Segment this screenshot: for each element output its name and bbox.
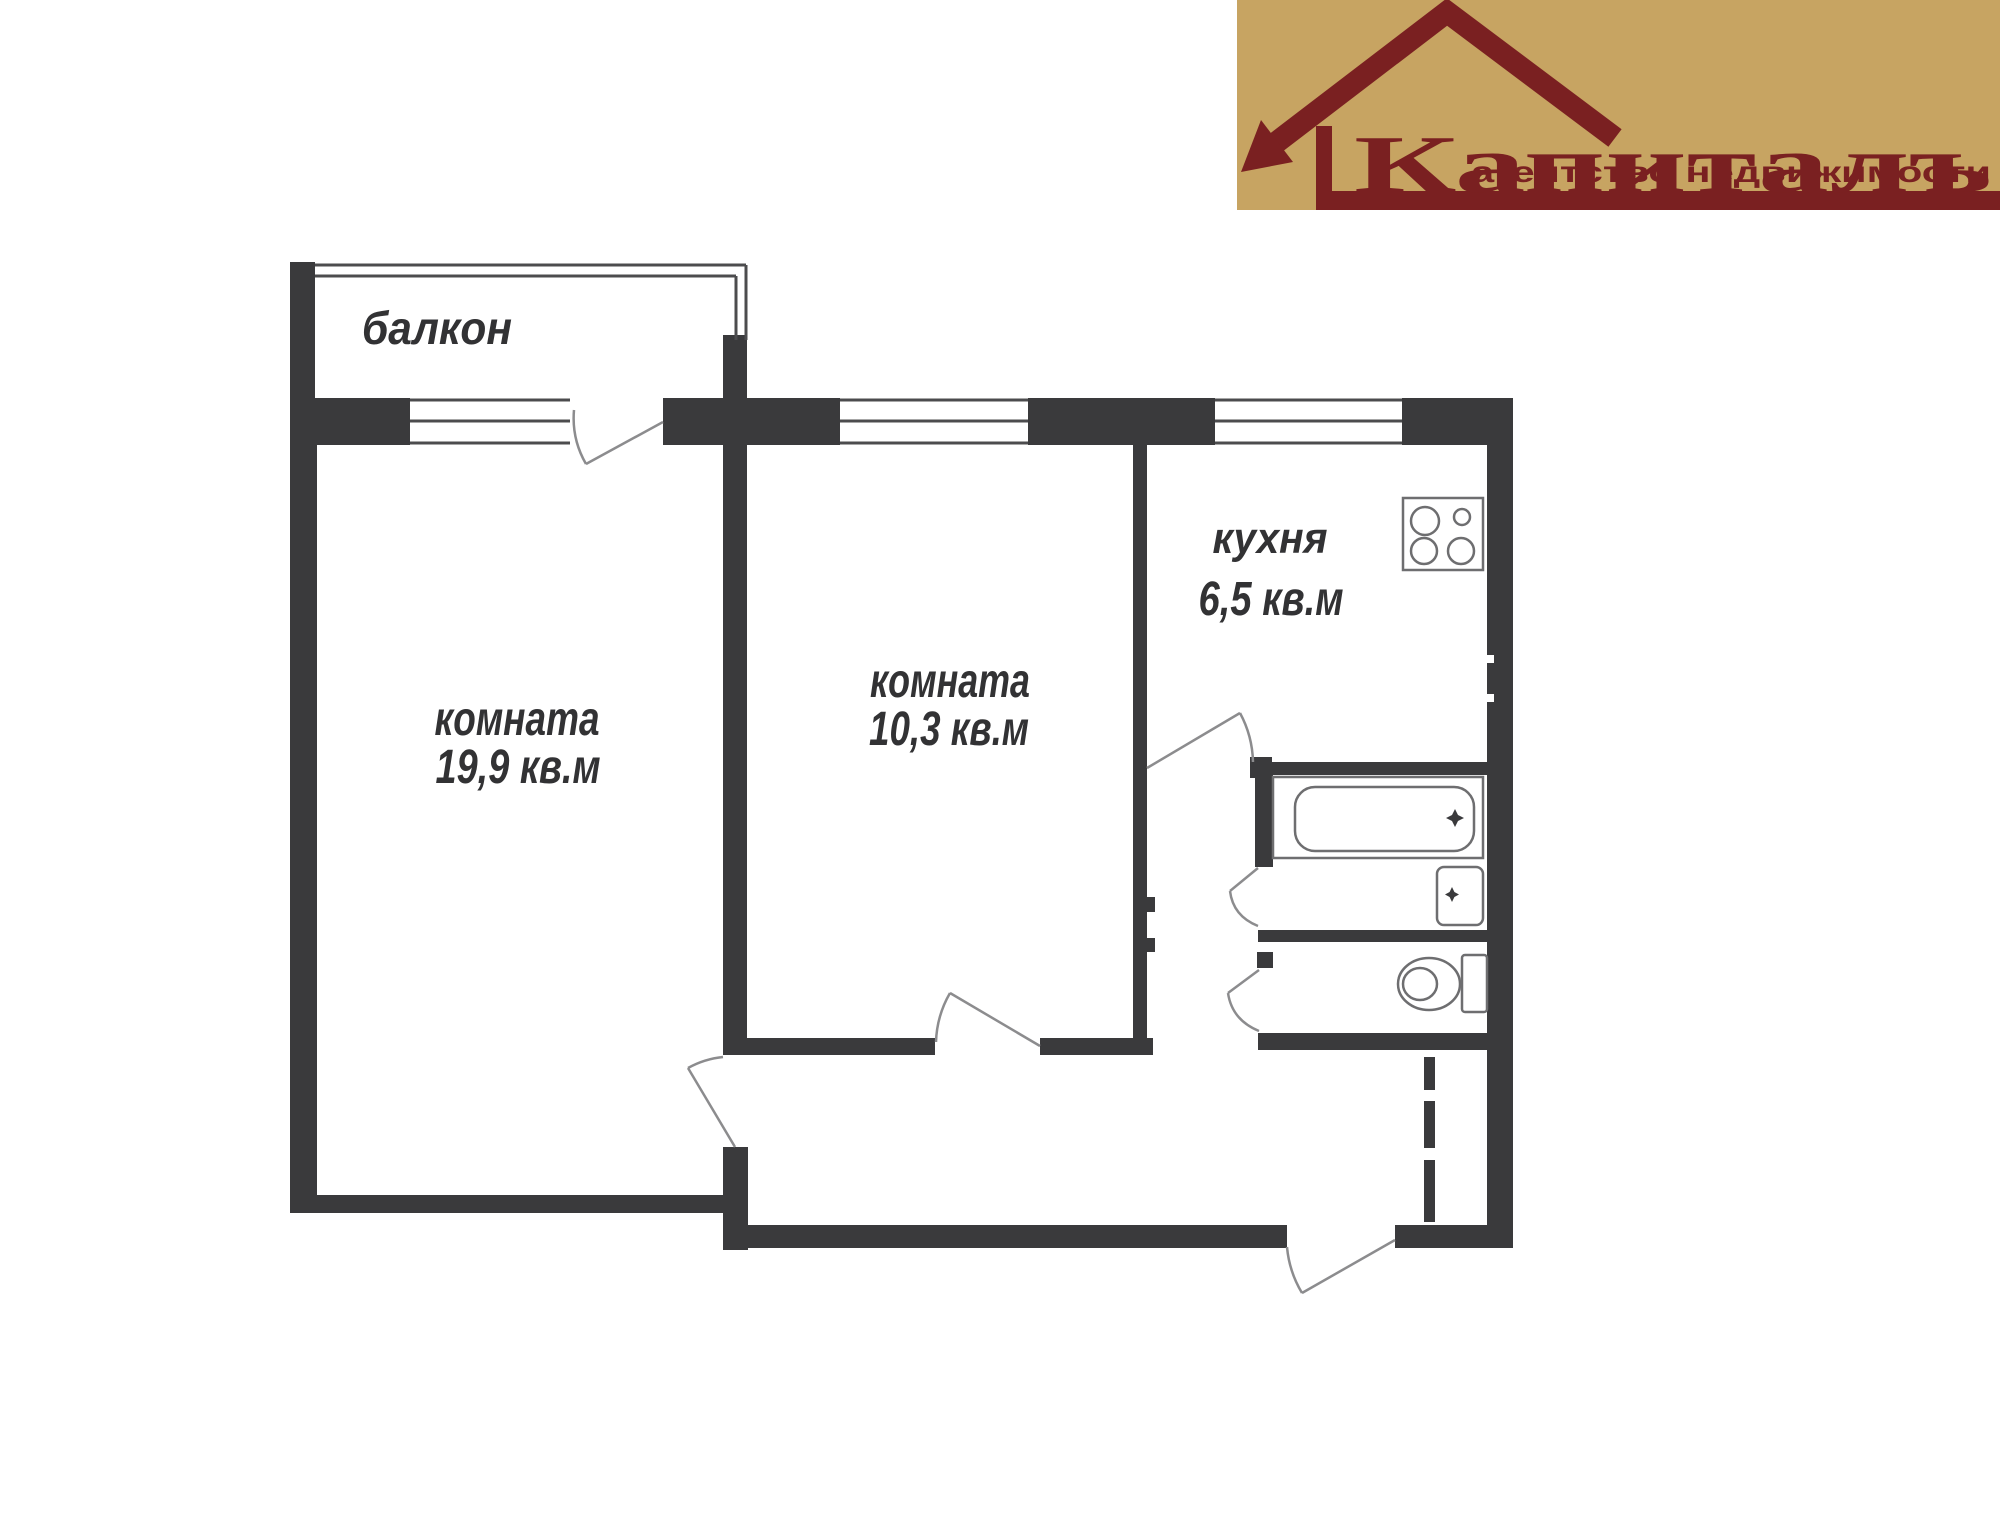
wall-segment-balcony-pillar xyxy=(723,335,747,398)
wall-segment-top-left xyxy=(290,398,410,445)
room-large-label: комната xyxy=(435,693,600,746)
wall-segment-top-right xyxy=(1402,398,1513,445)
wall-segment-toilet-left-pillar xyxy=(1257,952,1273,968)
vent-notch xyxy=(1487,694,1494,702)
kitchen-door-swing xyxy=(1147,713,1253,768)
wall-segment-balcony-left xyxy=(290,262,315,398)
vent-notch xyxy=(1487,655,1494,663)
bathtub-icon xyxy=(1273,777,1483,858)
faucet-icon xyxy=(1445,887,1459,902)
windows xyxy=(315,265,1402,443)
balcony-door-swing xyxy=(574,410,663,464)
wall-segment-partition-nub-a xyxy=(1147,897,1155,912)
wall-segment-top-center xyxy=(663,398,840,445)
floor-plan: балкон комната 19,9 кв.м комната 10,3 кв… xyxy=(0,0,2000,1520)
wall-segment-top-pier xyxy=(1028,398,1215,445)
balcony-label: балкон xyxy=(362,302,512,354)
wall-segment-middle-step xyxy=(723,1147,748,1250)
room-small-door-swing xyxy=(936,993,1040,1046)
room-labels: балкон комната 19,9 кв.м комната 10,3 кв… xyxy=(362,302,1344,794)
faucet-icon xyxy=(1446,809,1464,827)
room-large-door-swing xyxy=(688,1057,735,1147)
wall-segment-room1-bottom xyxy=(290,1195,723,1213)
wall-segment-kitchen-partition xyxy=(1133,445,1147,1053)
wall-segment-bathroom-left-pillar xyxy=(1255,852,1273,867)
closet-dashed-wall-segment xyxy=(1424,1101,1435,1148)
window-room-large xyxy=(410,400,570,443)
wall-segment-entry-right xyxy=(1395,1225,1513,1248)
closet-dashed-wall-segment xyxy=(1424,1160,1435,1222)
screenshot-canvas: балкон комната 19,9 кв.м комната 10,3 кв… xyxy=(0,0,2000,1520)
room-large-area: 19,9 кв.м xyxy=(436,741,601,794)
agency-logo: агентство недвижимости Капиталъ xyxy=(1237,0,2000,210)
wall-segment-toilet-bottom xyxy=(1258,1033,1487,1050)
kitchen-label: кухня xyxy=(1213,514,1328,563)
sink-icon xyxy=(1437,867,1483,925)
wall-segment-hall-bottom xyxy=(745,1225,1287,1248)
toilet-icon xyxy=(1398,955,1487,1012)
wall-segment-bath-toilet-divider xyxy=(1258,930,1487,942)
kitchen-area: 6,5 кв.м xyxy=(1199,573,1344,626)
wall-segment-bathroom-left xyxy=(1255,775,1273,852)
wall-segment-bathroom-top xyxy=(1253,762,1487,775)
logo-brand: Капиталъ xyxy=(1354,119,1992,210)
room-small-label: комната xyxy=(870,655,1030,708)
bathroom-door-swing xyxy=(1230,868,1258,926)
closet-dashed-wall-segment xyxy=(1424,1057,1435,1090)
house-left-wall xyxy=(1316,126,1332,192)
wall-segment-right-outer xyxy=(1487,445,1513,1248)
wall-segment-left-outer xyxy=(290,445,317,1213)
room-small-area: 10,3 кв.м xyxy=(869,703,1029,756)
window-kitchen xyxy=(1215,400,1402,443)
window-room-small xyxy=(840,400,1028,443)
wall-segment-room2-bottom-a xyxy=(747,1038,935,1055)
stove-icon xyxy=(1403,498,1483,570)
toilet-door-swing xyxy=(1228,970,1259,1031)
wall-segment-middle xyxy=(723,445,747,1055)
wall-segment-partition-nub-b xyxy=(1147,938,1155,952)
entrance-door-swing xyxy=(1287,1240,1395,1293)
